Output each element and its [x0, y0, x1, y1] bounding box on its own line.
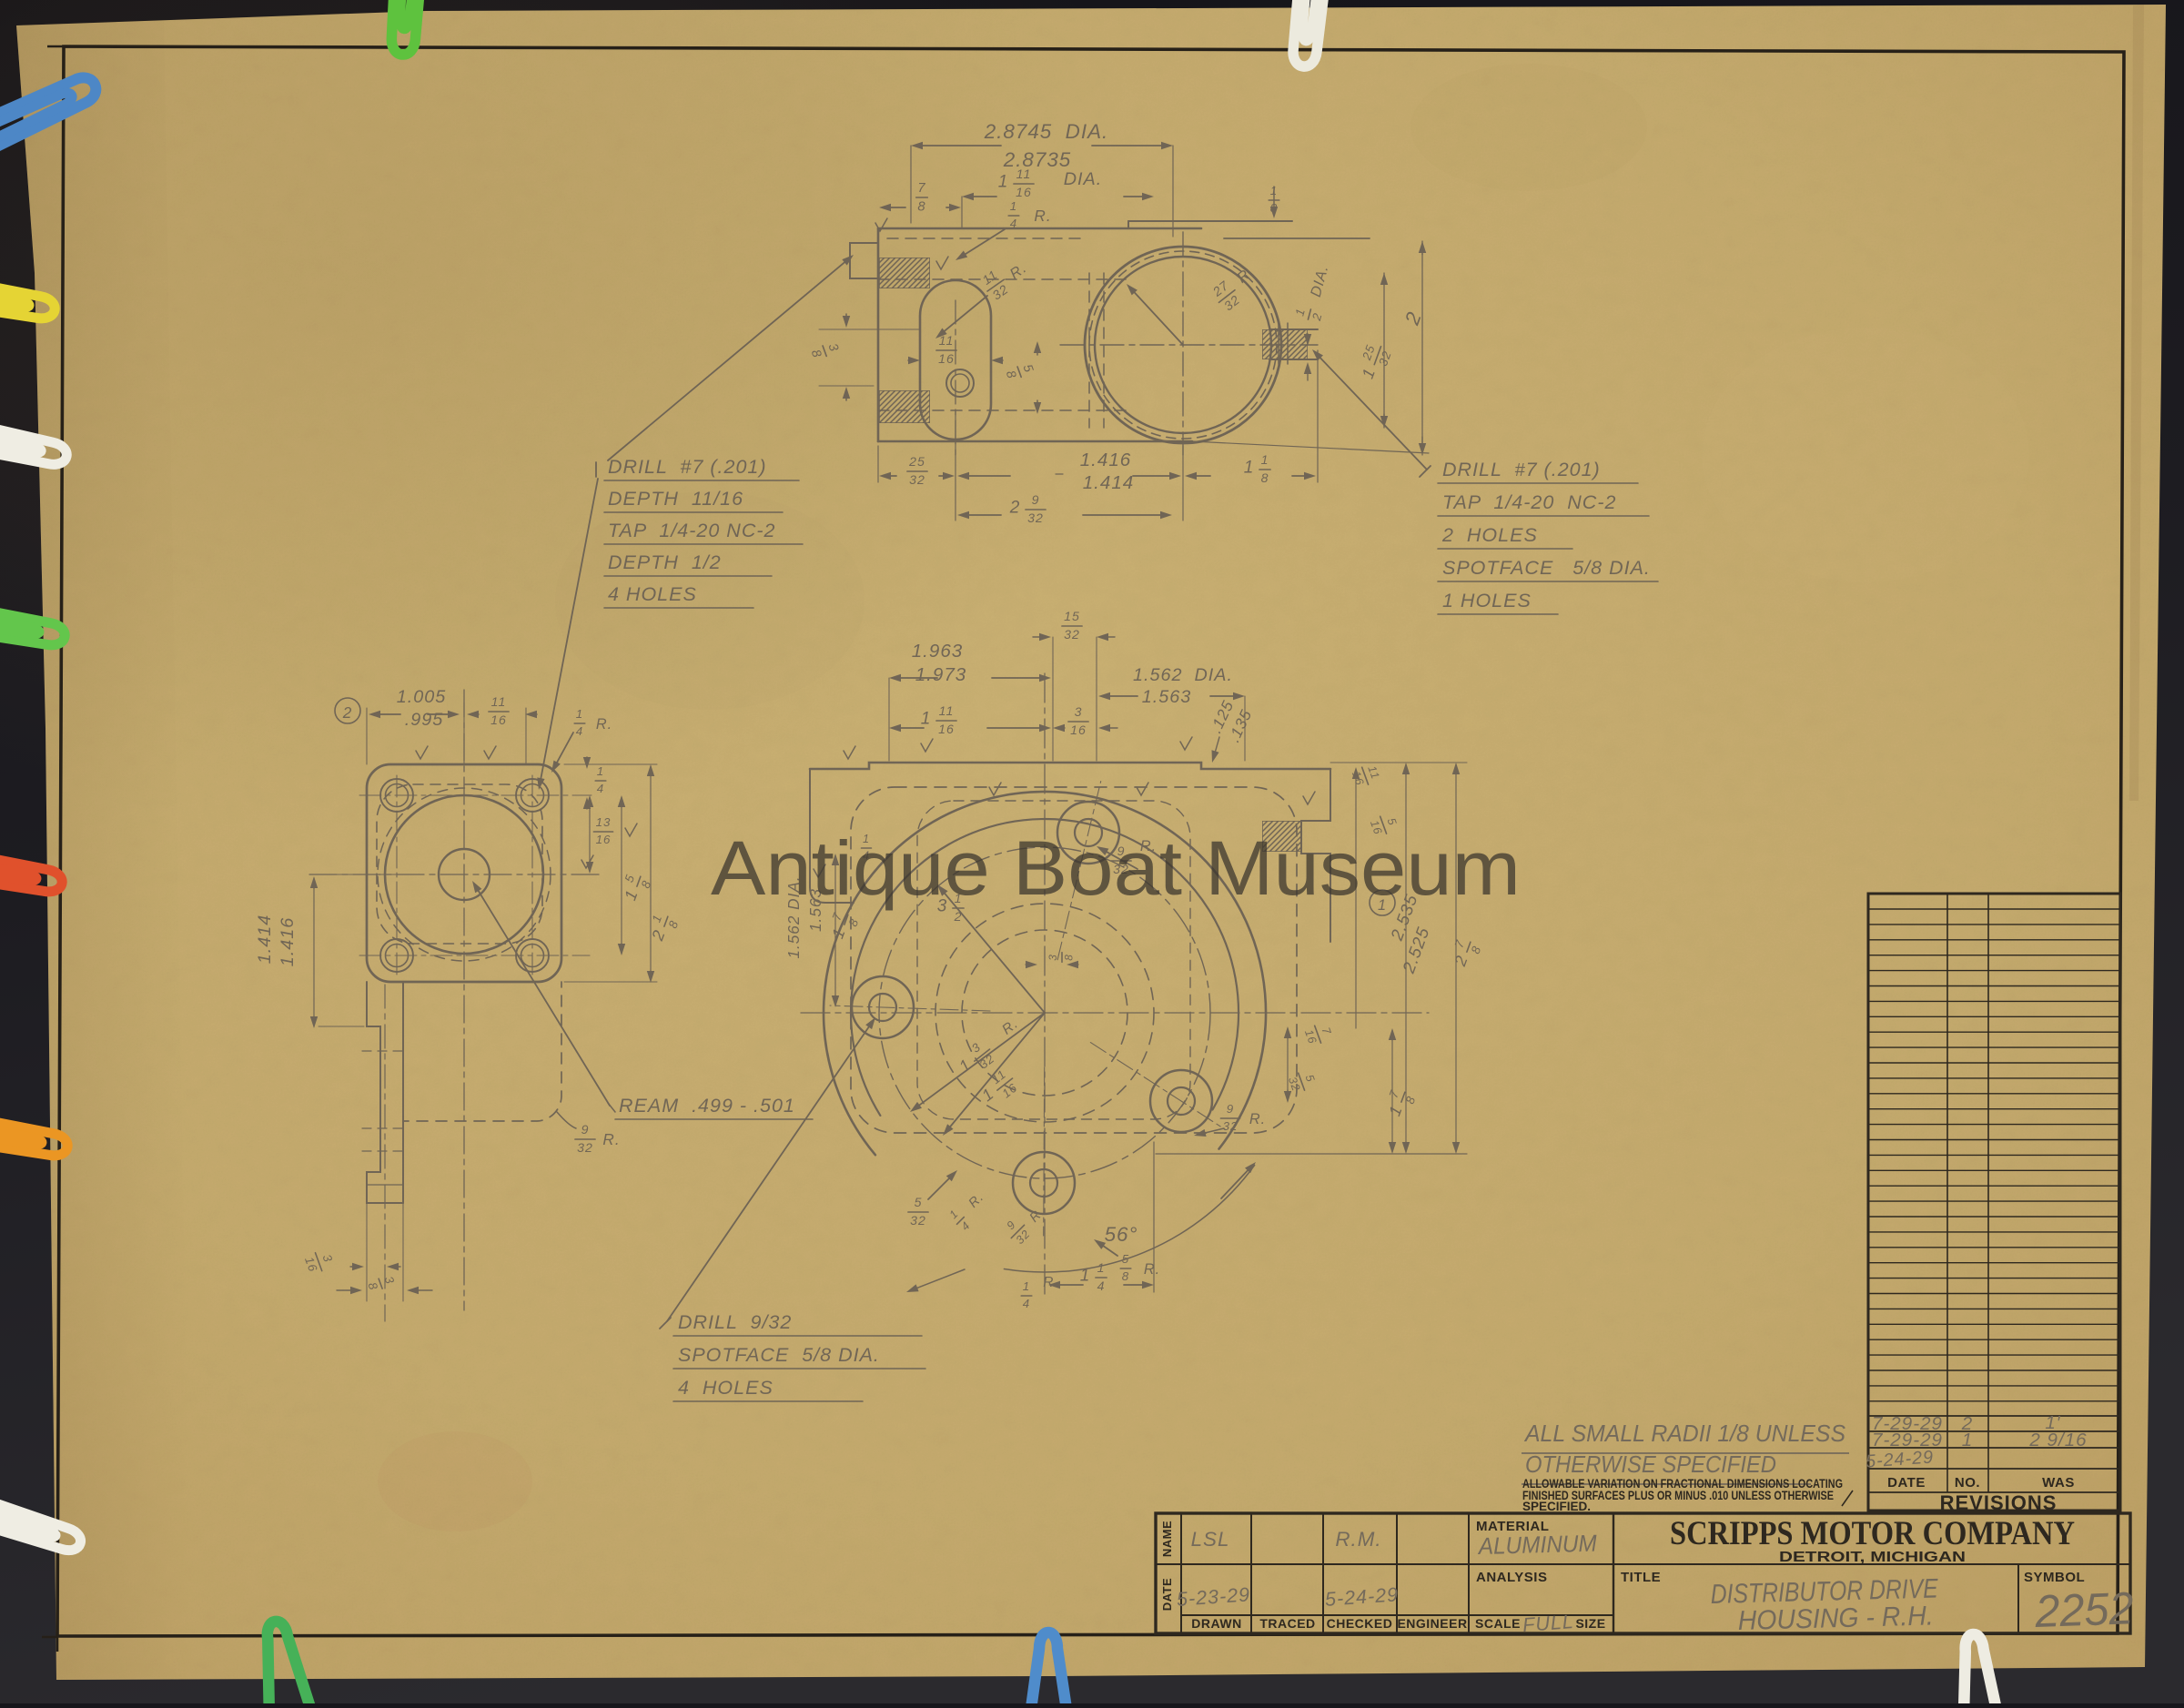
svg-text:4: 4 [1023, 1297, 1030, 1310]
svg-text:8: 8 [1063, 954, 1076, 961]
svg-text:1.414: 1.414 [255, 915, 275, 965]
svg-text:1: 1 [597, 764, 604, 778]
svg-text:SPOTFACE 5/8 DIA.: SPOTFACE 5/8 DIA. [1442, 557, 1651, 579]
svg-text:25: 25 [908, 454, 925, 469]
svg-text:11: 11 [939, 703, 955, 718]
svg-text:NAME: NAME [1160, 1521, 1174, 1557]
svg-text:1: 1 [1962, 1430, 1973, 1450]
svg-text:1: 1 [1010, 199, 1017, 213]
svg-text:DATE: DATE [1887, 1475, 1926, 1491]
svg-text:SPOTFACE 5/8 DIA.: SPOTFACE 5/8 DIA. [678, 1344, 880, 1366]
svg-text:9: 9 [1227, 1102, 1234, 1116]
svg-text:HOUSING - R.H.: HOUSING - R.H. [1737, 1601, 1934, 1636]
svg-text:CHECKED: CHECKED [1327, 1616, 1393, 1631]
svg-text:NO.: NO. [1955, 1475, 1980, 1491]
svg-text:1: 1 [998, 173, 1009, 192]
svg-text:2: 2 [1009, 499, 1021, 518]
svg-text:8: 8 [917, 200, 925, 215]
svg-text:4 HOLES: 4 HOLES [608, 583, 697, 605]
svg-text:9: 9 [581, 1122, 590, 1137]
svg-text:1: 1 [921, 710, 932, 729]
svg-text:1.416: 1.416 [1080, 450, 1132, 470]
svg-text:REVISIONS: REVISIONS [1940, 1491, 2058, 1514]
svg-text:SCALE: SCALE [1475, 1616, 1521, 1631]
svg-text:32: 32 [577, 1140, 593, 1155]
svg-text:TAP 1/4-20 NC-2: TAP 1/4-20 NC-2 [1442, 491, 1616, 513]
svg-text:56°: 56° [1105, 1223, 1138, 1246]
svg-text:8: 8 [1261, 470, 1269, 485]
svg-text:WAS: WAS [2042, 1475, 2075, 1491]
svg-text:32: 32 [1223, 1119, 1239, 1133]
svg-text:1.005: 1.005 [397, 687, 447, 707]
svg-text:1: 1 [576, 707, 583, 721]
svg-text:R.: R. [1249, 1111, 1266, 1127]
svg-text:DEPTH 1/2: DEPTH 1/2 [608, 551, 722, 573]
svg-text:4: 4 [597, 782, 604, 795]
svg-text:7: 7 [917, 181, 925, 196]
svg-text:2.8735: 2.8735 [1003, 148, 1071, 171]
svg-text:ENGINEER: ENGINEER [1397, 1616, 1467, 1631]
svg-text:SYMBOL: SYMBOL [2024, 1570, 2085, 1585]
svg-text:1: 1 [1261, 452, 1269, 467]
svg-text:8: 8 [1122, 1269, 1129, 1283]
svg-text:2.8745 DIA.: 2.8745 DIA. [984, 120, 1108, 143]
svg-text:1: 1 [1023, 1279, 1030, 1293]
svg-text:REAM .499 - .501: REAM .499 - .501 [619, 1095, 795, 1117]
svg-text:4: 4 [1010, 217, 1017, 230]
svg-text:16: 16 [938, 351, 955, 366]
svg-text:11: 11 [491, 694, 507, 709]
svg-text:R.: R. [1034, 207, 1051, 225]
svg-text:1: 1 [1080, 1267, 1091, 1286]
svg-text:32: 32 [1027, 510, 1044, 525]
svg-text:1.562 DIA.: 1.562 DIA. [1133, 665, 1233, 685]
svg-text:ALUMINUM: ALUMINUM [1476, 1530, 1597, 1560]
svg-text:OTHERWISE SPECIFIED: OTHERWISE SPECIFIED [1525, 1450, 1776, 1478]
svg-text:DRILL 9/32: DRILL 9/32 [678, 1311, 792, 1333]
svg-text:1.563: 1.563 [1142, 687, 1192, 707]
svg-text:2 HOLES: 2 HOLES [1441, 524, 1538, 546]
svg-text:DIA.: DIA. [1064, 169, 1102, 189]
svg-text:TITLE: TITLE [1621, 1570, 1661, 1585]
svg-text:16: 16 [596, 833, 612, 846]
svg-text:1: 1 [1097, 1260, 1106, 1275]
svg-text:4: 4 [1097, 1278, 1106, 1293]
svg-text:1.973: 1.973 [915, 664, 967, 685]
svg-text:R.: R. [596, 716, 612, 733]
svg-text:1: 1 [1244, 459, 1255, 478]
svg-text:1.414: 1.414 [1083, 472, 1135, 493]
svg-text:TAP 1/4-20 NC-2: TAP 1/4-20 NC-2 [608, 520, 775, 541]
svg-text:R.: R. [1144, 1261, 1160, 1278]
svg-text:3: 3 [1075, 704, 1083, 719]
svg-text:16: 16 [938, 722, 955, 736]
svg-text:1.416: 1.416 [278, 917, 298, 967]
svg-text:4: 4 [576, 724, 583, 738]
svg-text:DRILL #7 (.201): DRILL #7 (.201) [1442, 459, 1601, 480]
svg-text:32: 32 [909, 472, 925, 487]
svg-text:ALL SMALL RADII 1/8 UNLESS: ALL SMALL RADII 1/8 UNLESS [1523, 1420, 1846, 1447]
svg-text:DRAWN: DRAWN [1191, 1616, 1241, 1631]
svg-text:1.963: 1.963 [912, 641, 964, 662]
svg-text:11: 11 [1016, 167, 1032, 181]
svg-text:11: 11 [939, 333, 955, 348]
svg-text:4 HOLES: 4 HOLES [678, 1377, 773, 1399]
svg-text:2: 2 [954, 909, 963, 924]
svg-text:DEPTH 11/16: DEPTH 11/16 [608, 488, 743, 510]
svg-text:16: 16 [1016, 185, 1032, 199]
svg-text:ANALYSIS: ANALYSIS [1476, 1570, 1547, 1585]
svg-text:DETROIT, MICHIGAN: DETROIT, MICHIGAN [1779, 1550, 1966, 1565]
svg-text:16: 16 [1070, 723, 1087, 737]
svg-text:R.M.: R.M. [1335, 1528, 1381, 1551]
svg-text:FULL: FULL [1522, 1611, 1574, 1636]
svg-text:1 HOLES: 1 HOLES [1442, 590, 1532, 611]
svg-text:2: 2 [342, 703, 353, 722]
svg-text:.995: .995 [405, 710, 444, 730]
svg-text:32: 32 [1064, 627, 1080, 642]
svg-text:TRACED: TRACED [1259, 1616, 1315, 1631]
svg-text:2 9/16: 2 9/16 [2028, 1430, 2087, 1450]
svg-text:13: 13 [596, 815, 612, 829]
svg-text:R.: R. [602, 1130, 620, 1148]
svg-text:5: 5 [915, 1195, 923, 1209]
svg-text:16: 16 [490, 713, 507, 727]
svg-text:32: 32 [910, 1213, 926, 1228]
svg-text:SIZE: SIZE [1575, 1616, 1605, 1631]
svg-text:SPECIFIED.: SPECIFIED. [1522, 1500, 1591, 1513]
svg-text:9: 9 [1032, 492, 1040, 507]
svg-text:Antique Boat Museum: Antique Boat Museum [711, 825, 1521, 911]
svg-text:3: 3 [1046, 954, 1059, 961]
svg-text:DATE: DATE [1160, 1578, 1174, 1611]
svg-text:2252: 2252 [2033, 1582, 2134, 1637]
svg-text:SCRIPPS MOTOR COMPANY: SCRIPPS MOTOR COMPANY [1670, 1515, 2075, 1552]
svg-text:LSL: LSL [1191, 1528, 1230, 1551]
svg-text:DRILL #7 (.201): DRILL #7 (.201) [608, 456, 767, 478]
svg-text:15: 15 [1064, 609, 1080, 623]
